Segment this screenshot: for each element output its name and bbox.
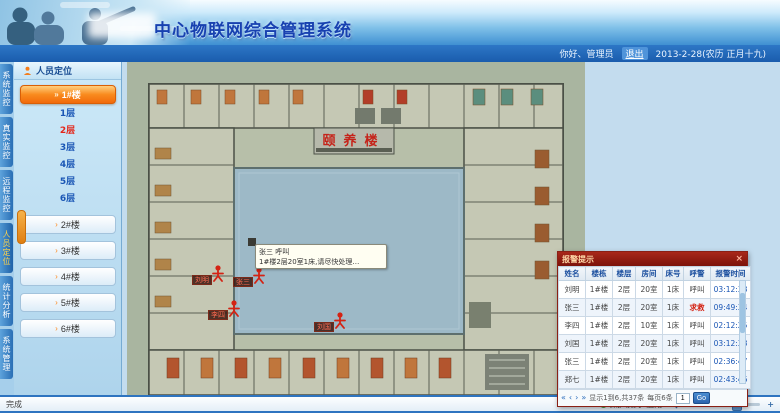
- date-text: 2013-2-28(农历 正月十九): [656, 47, 766, 60]
- first-page-button[interactable]: «: [561, 394, 566, 402]
- table-row[interactable]: 刘国1#楼2层20室1床呼叫03:12:38: [559, 335, 751, 353]
- building-button-1[interactable]: » 1#楼: [20, 85, 116, 104]
- nav-tab-2[interactable]: 真实监控: [0, 117, 13, 167]
- table-row[interactable]: 李四1#楼2层10室1床呼叫02:12:25: [559, 317, 751, 335]
- alarm-table: 姓名楼栋楼层房间床号呼警报警时间 刘明1#楼2层20室1床呼叫03:12:38张…: [558, 266, 751, 389]
- nav-tab-1[interactable]: 系统监控: [0, 64, 13, 114]
- building-label: 5#楼: [61, 296, 80, 309]
- popup-title: 报警提示: [562, 254, 594, 265]
- logout-link[interactable]: 退出: [622, 47, 648, 60]
- col-header-4: 房间: [636, 267, 663, 281]
- floor-list: 1层2层3层4层5层6层: [14, 106, 121, 208]
- table-row[interactable]: 张三1#楼2层20室1床呼叫02:36:47: [559, 353, 751, 371]
- sidebar-collapse-handle[interactable]: [17, 210, 26, 244]
- alarm-person-icon: [253, 267, 265, 284]
- building-label: 3#楼: [61, 244, 80, 257]
- chevron-right-icon: ›: [55, 272, 58, 281]
- chevron-right-icon: ›: [55, 220, 58, 229]
- building-button-4[interactable]: ›4#楼: [20, 267, 116, 286]
- col-header-7: 报警时间: [711, 267, 751, 281]
- building-plaque: 颐养楼: [322, 133, 385, 149]
- person-marker[interactable]: 刘国: [313, 312, 347, 333]
- censored-title-block: [88, 13, 156, 38]
- zoom-in-icon[interactable]: +: [767, 400, 774, 409]
- close-icon[interactable]: ×: [735, 255, 743, 264]
- sidebar-header: 人员定位: [14, 62, 121, 80]
- floor-link-6[interactable]: 6层: [14, 191, 121, 208]
- app-window: 中心物联网综合管理系统 你好、管理员 退出 2013-2-28(农历 正月十九)…: [0, 0, 780, 413]
- pagination-info: 显示1到6,共37条: [589, 393, 644, 403]
- tooltip-line1: 张三 呼叫: [259, 247, 383, 257]
- prev-page-button[interactable]: ‹: [569, 394, 572, 402]
- marker-name-flag: 张三: [233, 277, 253, 287]
- building-list: ›2#楼›3#楼›4#楼›5#楼›6#楼: [14, 215, 121, 338]
- person-marker[interactable]: 刘明: [191, 265, 225, 286]
- goto-page-input[interactable]: [676, 393, 690, 404]
- table-row[interactable]: 刘明1#楼2层20室1床呼叫03:12:38: [559, 281, 751, 299]
- scrollbar-thumb[interactable]: [740, 293, 745, 333]
- marker-name-flag: 李四: [208, 310, 228, 320]
- status-text: 完成: [6, 399, 22, 410]
- table-row[interactable]: 郑七1#楼2层20室1床呼叫02:43:46: [559, 371, 751, 389]
- building-label: 1#楼: [62, 88, 81, 101]
- app-title: 中心物联网综合管理系统: [154, 16, 352, 41]
- table-scrollbar[interactable]: [739, 280, 746, 384]
- next-page-button[interactable]: ›: [575, 394, 578, 402]
- person-icon: [23, 66, 32, 75]
- tooltip-line2: 1#楼2层20室1床,请尽快处理…: [259, 257, 383, 267]
- nav-tab-3[interactable]: 远程监控: [0, 170, 13, 220]
- popup-titlebar: 报警提示 ×: [558, 252, 747, 266]
- sidebar-title: 人员定位: [36, 64, 72, 77]
- go-button[interactable]: Go: [693, 392, 710, 404]
- person-marker[interactable]: 张三: [232, 267, 266, 288]
- building-button-2[interactable]: ›2#楼: [20, 215, 116, 234]
- nav-tabstrip: 系统监控真实监控远程监控人员定位统计分析系统管理: [0, 62, 14, 395]
- last-page-button[interactable]: »: [581, 394, 586, 402]
- sidebar: 人员定位 » 1#楼 1层2层3层4层5层6层 ›2#楼›3#楼›4#楼›5#楼…: [14, 62, 122, 395]
- building-label: 2#楼: [61, 218, 80, 231]
- person-marker[interactable]: 李四: [207, 300, 241, 321]
- marker-name-flag: 刘明: [192, 275, 212, 285]
- col-header-3: 楼层: [613, 267, 636, 281]
- floor-plan-drawing: 颐养楼: [127, 62, 585, 395]
- chevron-right-icon: ›: [55, 324, 58, 333]
- building-button-3[interactable]: ›3#楼: [20, 241, 116, 260]
- greeting-text: 你好、管理员: [560, 47, 614, 60]
- table-row[interactable]: 张三1#楼2层20室1床求救09:49:34: [559, 299, 751, 317]
- col-header-5: 床号: [663, 267, 684, 281]
- col-header-1: 姓名: [559, 267, 586, 281]
- chevron-right-icon: ›: [55, 298, 58, 307]
- alarm-popup: 报警提示 × 姓名楼栋楼层房间床号呼警报警时间 刘明1#楼2层20室1床呼叫03…: [557, 251, 748, 407]
- building-button-6[interactable]: ›6#楼: [20, 319, 116, 338]
- col-header-6: 呼警: [684, 267, 711, 281]
- building-label: 6#楼: [61, 322, 80, 335]
- nav-tab-4[interactable]: 人员定位: [0, 223, 13, 273]
- building-label: 4#楼: [61, 270, 80, 283]
- nav-tab-6[interactable]: 系统管理: [0, 329, 13, 379]
- alarm-person-icon: [228, 300, 240, 317]
- chevron-right-icon: »: [54, 90, 58, 99]
- col-header-2: 楼栋: [586, 267, 613, 281]
- app-header: 中心物联网综合管理系统: [0, 0, 780, 45]
- alarm-person-icon: [212, 265, 224, 282]
- building-button-5[interactable]: ›5#楼: [20, 293, 116, 312]
- floor-plan: 颐养楼: [127, 62, 585, 395]
- marker-name-flag: 刘国: [314, 322, 334, 332]
- per-page-label: 每页6条: [647, 393, 672, 403]
- user-bar: 你好、管理员 退出 2013-2-28(农历 正月十九): [0, 45, 780, 62]
- chevron-right-icon: ›: [55, 246, 58, 255]
- floor-link-2[interactable]: 2层: [14, 123, 121, 140]
- floor-link-3[interactable]: 3层: [14, 140, 121, 157]
- alarm-tooltip: 张三 呼叫 1#楼2层20室1床,请尽快处理…: [255, 244, 387, 269]
- floor-link-1[interactable]: 1层: [14, 106, 121, 123]
- pagination-bar: « ‹ › » 显示1到6,共37条 每页6条 Go: [558, 389, 747, 406]
- floor-link-4[interactable]: 4层: [14, 157, 121, 174]
- alarm-person-icon: [334, 312, 346, 329]
- floor-link-5[interactable]: 5层: [14, 174, 121, 191]
- nav-tab-5[interactable]: 统计分析: [0, 276, 13, 326]
